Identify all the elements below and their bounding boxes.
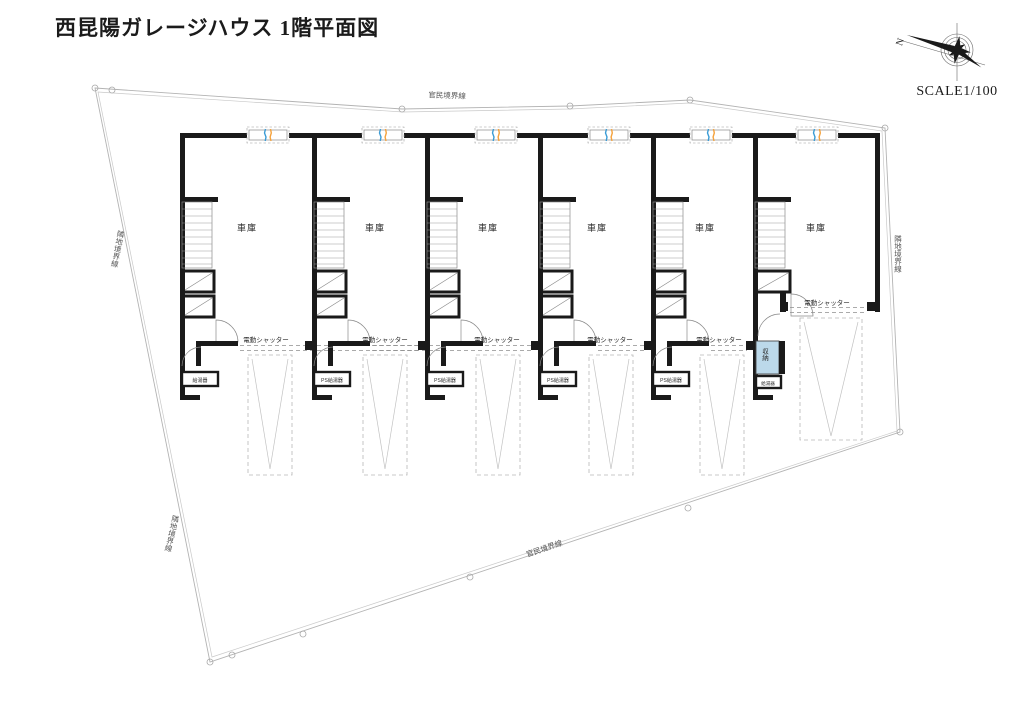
- garage-label: 車庫: [806, 222, 826, 233]
- floor-plan-page: 西昆陽ガレージハウス 1階平面図: [0, 0, 1024, 725]
- boundary-label-bottom-left: 隣地境界線: [163, 513, 181, 553]
- shutter-label: 電動シャッター: [474, 335, 520, 344]
- water-heater-label: PS給湯器: [434, 377, 456, 384]
- garage-label: 車庫: [695, 222, 715, 233]
- building: 車庫 車庫 車庫 車庫 車庫 車庫 電動シャッター 電動シャッター 電動シャッタ…: [180, 127, 880, 475]
- garage-label: 車庫: [237, 222, 257, 233]
- water-heater-label: 給湯器: [192, 377, 207, 384]
- shutter-label: 電動シャッター: [804, 298, 850, 307]
- water-heater-label: PS給湯器: [321, 377, 343, 384]
- unit-5: [651, 133, 753, 400]
- water-heater-label: PS給湯器: [660, 377, 682, 384]
- garage-label: 車庫: [365, 222, 385, 233]
- unit-6: [753, 133, 875, 400]
- garage-label: 車庫: [478, 222, 498, 233]
- shutter-label: 電動シャッター: [362, 335, 408, 344]
- compass-icon: [903, 23, 986, 81]
- parking-stall-icon: [800, 318, 862, 440]
- floor-plan-drawing: 官民境界線 隣地境界線 隣地境界線 隣地境界線 官民境界線: [0, 0, 1024, 725]
- shutter-label: 電動シャッター: [587, 335, 633, 344]
- compass-north-label: N: [894, 37, 907, 48]
- water-heater-label: 給湯器: [761, 380, 775, 387]
- garage-label: 車庫: [587, 222, 607, 233]
- unit-4: [538, 133, 651, 400]
- room-labels: 車庫 車庫 車庫 車庫 車庫 車庫 電動シャッター 電動シャッター 電動シャッタ…: [192, 222, 849, 387]
- unit-3: [425, 133, 538, 400]
- boundary-label-right: 隣地境界線: [893, 234, 902, 273]
- water-heater-label: PS給湯器: [547, 377, 569, 384]
- storage-box: [756, 341, 779, 374]
- wall-right: [875, 133, 880, 312]
- boundary-label-bottom: 官民境界線: [525, 537, 564, 559]
- shutter-label: 電動シャッター: [696, 335, 742, 344]
- shutter-label: 電動シャッター: [243, 335, 289, 344]
- boundary-label-top: 官民境界線: [428, 89, 466, 100]
- scale-label: SCALE1/100: [916, 84, 997, 99]
- boundary-label-left: 隣地境界線: [110, 228, 127, 268]
- unit-2: [312, 133, 425, 400]
